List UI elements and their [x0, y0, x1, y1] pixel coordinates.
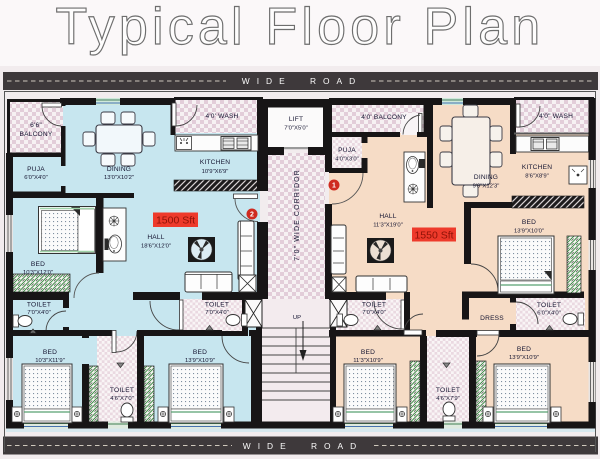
svg-text:LIFT: LIFT: [289, 116, 303, 123]
svg-text:13'9"X10'9": 13'9"X10'9": [185, 358, 215, 364]
svg-text:BED: BED: [31, 261, 45, 268]
svg-text:TOILET: TOILET: [537, 302, 561, 309]
svg-text:8'6"X8'9": 8'6"X8'9": [525, 174, 548, 180]
svg-text:BED: BED: [517, 346, 531, 353]
svg-text:Typical Floor Plan: Typical Floor Plan: [56, 0, 545, 56]
svg-text:18'6"X12'0": 18'6"X12'0": [141, 244, 171, 250]
svg-text:6'0"X4'0": 6'0"X4'0": [537, 311, 560, 317]
svg-text:7'0"X4'0": 7'0"X4'0": [362, 310, 385, 316]
svg-text:10'9"X6'9": 10'9"X6'9": [202, 169, 229, 175]
svg-text:11'3"X10'9": 11'3"X10'9": [353, 358, 383, 364]
svg-text:WIDE ROAD: WIDE ROAD: [242, 76, 362, 86]
svg-text:7'0" WIDE CORRIDOR: 7'0" WIDE CORRIDOR: [294, 169, 301, 261]
svg-text:13'9"X10'0": 13'9"X10'0": [514, 229, 544, 235]
svg-text:TOILET: TOILET: [110, 387, 134, 394]
svg-text:4'6"X7'0": 4'6"X7'0": [110, 396, 133, 402]
svg-text:4'0" WASH: 4'0" WASH: [539, 113, 573, 120]
svg-text:6'0"X4'0": 6'0"X4'0": [24, 175, 47, 181]
svg-text:HALL: HALL: [147, 234, 164, 241]
svg-text:6'6": 6'6": [30, 122, 42, 129]
svg-text:10'3"X12'0": 10'3"X12'0": [23, 270, 53, 276]
svg-text:KITCHEN: KITCHEN: [522, 164, 552, 171]
svg-text:1: 1: [332, 183, 336, 190]
svg-text:UP: UP: [293, 315, 301, 321]
svg-text:2: 2: [250, 212, 254, 219]
svg-text:10'3"X11'9": 10'3"X11'9": [35, 358, 65, 364]
svg-text:13'9"X10'9": 13'9"X10'9": [509, 355, 539, 361]
svg-text:TOILET: TOILET: [436, 387, 460, 394]
svg-text:TOILET: TOILET: [205, 302, 229, 309]
svg-text:WIDE ROAD: WIDE ROAD: [243, 441, 363, 451]
svg-text:HALL: HALL: [379, 213, 396, 220]
svg-text:BED: BED: [193, 349, 207, 356]
svg-text:PUJA: PUJA: [338, 147, 356, 154]
svg-text:11'3"X19'0": 11'3"X19'0": [373, 223, 403, 229]
svg-text:9'9"X12'3": 9'9"X12'3": [473, 184, 500, 190]
svg-text:13'0"X10'2": 13'0"X10'2": [104, 175, 134, 181]
svg-text:BED: BED: [522, 219, 536, 226]
svg-text:DINING: DINING: [474, 174, 498, 181]
svg-text:TOILET: TOILET: [362, 302, 386, 309]
svg-text:7'0"X4'0": 7'0"X4'0": [27, 310, 50, 316]
svg-text:7'0"X4'0": 7'0"X4'0": [205, 310, 228, 316]
svg-text:7'0"X5'0": 7'0"X5'0": [284, 126, 307, 132]
svg-text:DINING: DINING: [107, 166, 131, 173]
svg-text:4'0' BALCONY: 4'0' BALCONY: [361, 114, 407, 121]
svg-text:1550 Sft: 1550 Sft: [414, 230, 453, 242]
svg-text:KITCHEN: KITCHEN: [200, 159, 230, 166]
svg-text:PUJA: PUJA: [27, 166, 45, 173]
svg-text:BED: BED: [361, 349, 375, 356]
svg-text:4'0"X3'0": 4'0"X3'0": [335, 157, 358, 163]
svg-text:4'0' WASH: 4'0' WASH: [205, 113, 238, 120]
svg-text:BED: BED: [43, 349, 57, 356]
svg-text:TOILET: TOILET: [27, 302, 51, 309]
svg-text:BALCONY: BALCONY: [20, 131, 53, 138]
svg-text:DRESS: DRESS: [480, 315, 504, 322]
svg-text:1500 Sft: 1500 Sft: [156, 215, 195, 227]
svg-text:4'6"X7'9": 4'6"X7'9": [436, 396, 459, 402]
